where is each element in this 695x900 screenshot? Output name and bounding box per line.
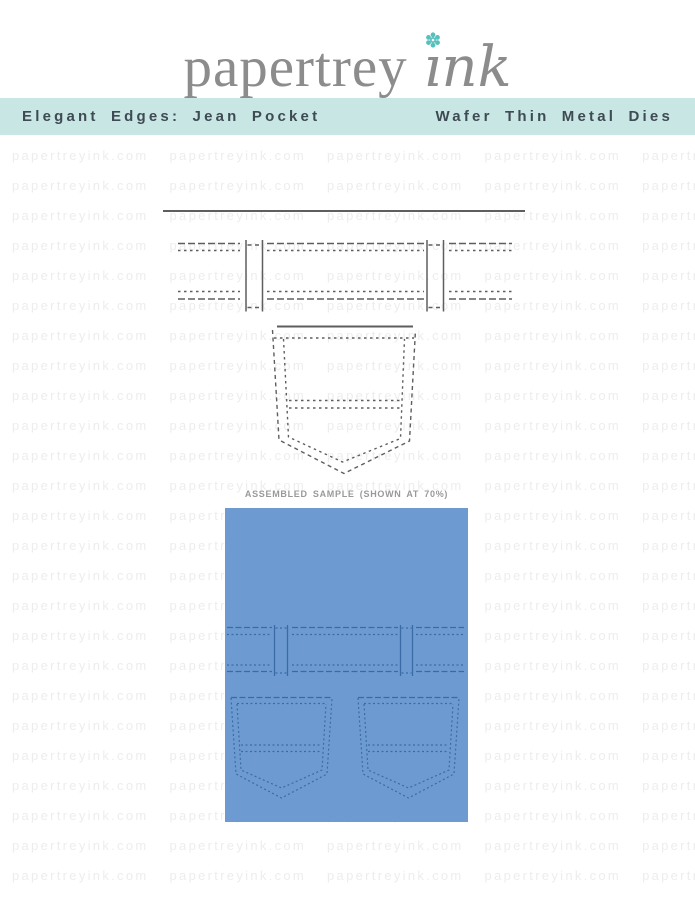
watermark-text: papertreyink.com — [642, 628, 695, 643]
watermark-text: papertreyink.com — [485, 238, 622, 253]
watermark-text: papertreyink.com — [170, 388, 307, 403]
watermark-text: papertreyink.com — [12, 718, 149, 733]
watermark-text: papertreyink.com — [642, 178, 695, 193]
assembled-sample-card — [225, 508, 468, 822]
watermark-text: papertreyink.com — [327, 328, 464, 343]
watermark-text: papertreyink.com — [485, 628, 622, 643]
watermark-text: papertreyink.com — [12, 778, 149, 793]
watermark-text: papertreyink.com — [485, 718, 622, 733]
watermark-text: papertreyink.com — [170, 148, 307, 163]
watermark-text: papertreyink.com — [485, 598, 622, 613]
watermark-row: papertreyink.compapertreyink.compapertre… — [12, 838, 695, 853]
watermark-text: papertreyink.com — [12, 598, 149, 613]
watermark-text: papertreyink.com — [12, 508, 149, 523]
watermark-text: papertreyink.com — [485, 748, 622, 763]
watermark-text: papertreyink.com — [327, 388, 464, 403]
watermark-text: papertreyink.com — [12, 808, 149, 823]
watermark-text: papertreyink.com — [12, 208, 149, 223]
watermark-text: papertreyink.com — [485, 178, 622, 193]
watermark-text: papertreyink.com — [327, 838, 464, 853]
watermark-row: papertreyink.compapertreyink.compapertre… — [12, 418, 695, 433]
watermark-text: papertreyink.com — [12, 328, 149, 343]
watermark-text: papertreyink.com — [327, 148, 464, 163]
watermark-text: papertreyink.com — [485, 328, 622, 343]
watermark-text: papertreyink.com — [642, 748, 695, 763]
watermark-text: papertreyink.com — [485, 268, 622, 283]
watermark-text: papertreyink.com — [485, 298, 622, 313]
watermark-text: papertreyink.com — [485, 478, 622, 493]
watermark-text: papertreyink.com — [12, 388, 149, 403]
sample-belt-loop-right — [401, 625, 413, 676]
sample-stitching — [225, 508, 468, 822]
watermark-text: papertreyink.com — [12, 298, 149, 313]
watermark-text: papertreyink.com — [485, 388, 622, 403]
watermark-row: papertreyink.compapertreyink.compapertre… — [12, 298, 695, 313]
watermark-text: papertreyink.com — [327, 868, 464, 883]
watermark-text: papertreyink.com — [12, 238, 149, 253]
watermark-text: papertreyink.com — [642, 568, 695, 583]
watermark-text: papertreyink.com — [12, 538, 149, 553]
watermark-text: papertreyink.com — [170, 268, 307, 283]
watermark-text: papertreyink.com — [485, 808, 622, 823]
watermark-text: papertreyink.com — [642, 598, 695, 613]
watermark-text: papertreyink.com — [327, 448, 464, 463]
watermark-text: papertreyink.com — [327, 298, 464, 313]
watermark-text: papertreyink.com — [642, 808, 695, 823]
watermark-text: papertreyink.com — [12, 628, 149, 643]
watermark-text: papertreyink.com — [642, 208, 695, 223]
watermark-text: papertreyink.com — [170, 178, 307, 193]
watermark-text: papertreyink.com — [12, 688, 149, 703]
watermark-text: papertreyink.com — [485, 538, 622, 553]
watermark-text: papertreyink.com — [327, 418, 464, 433]
watermark-text: papertreyink.com — [642, 688, 695, 703]
watermark-text: papertreyink.com — [642, 418, 695, 433]
watermark-text: papertreyink.com — [170, 298, 307, 313]
watermark-row: papertreyink.compapertreyink.compapertre… — [12, 268, 695, 283]
product-title: Elegant Edges: Jean Pocket — [22, 108, 320, 125]
watermark-row: papertreyink.compapertreyink.compapertre… — [12, 388, 695, 403]
watermark-text: papertreyink.com — [170, 208, 307, 223]
watermark-text: papertreyink.com — [327, 178, 464, 193]
watermark-row: papertreyink.compapertreyink.compapertre… — [12, 238, 695, 253]
watermark-text: papertreyink.com — [170, 868, 307, 883]
watermark-text: papertreyink.com — [170, 328, 307, 343]
watermark-text: papertreyink.com — [170, 838, 307, 853]
watermark-text: papertreyink.com — [170, 238, 307, 253]
watermark-text: papertreyink.com — [12, 418, 149, 433]
logo-brand-text: papertrey — [183, 39, 407, 96]
watermark-row: papertreyink.compapertreyink.compapertre… — [12, 358, 695, 373]
watermark-text: papertreyink.com — [327, 208, 464, 223]
watermark-text: papertreyink.com — [485, 208, 622, 223]
watermark-text: papertreyink.com — [12, 658, 149, 673]
watermark-text: papertreyink.com — [485, 418, 622, 433]
logo-suffix-wrap: ınk — [424, 40, 512, 96]
watermark-text: papertreyink.com — [12, 358, 149, 373]
watermark-row: papertreyink.compapertreyink.compapertre… — [12, 178, 695, 193]
watermark-text: papertreyink.com — [642, 388, 695, 403]
watermark-text: papertreyink.com — [170, 358, 307, 373]
watermark-row: papertreyink.compapertreyink.compapertre… — [12, 208, 695, 223]
watermark-text: papertreyink.com — [642, 238, 695, 253]
sample-belt-loop-left — [275, 625, 288, 676]
watermark-text: papertreyink.com — [485, 658, 622, 673]
sample-pocket-right — [358, 698, 459, 799]
watermark-row: papertreyink.compapertreyink.compapertre… — [12, 148, 695, 163]
watermark-text: papertreyink.com — [485, 778, 622, 793]
watermark-text: papertreyink.com — [642, 838, 695, 853]
watermark-text: papertreyink.com — [12, 178, 149, 193]
watermark-text: papertreyink.com — [485, 358, 622, 373]
watermark-text: papertreyink.com — [327, 238, 464, 253]
watermark-text: papertreyink.com — [642, 478, 695, 493]
page: papertrey ınk Elegant Edges: Jean Pocket… — [0, 0, 695, 900]
watermark-text: papertreyink.com — [485, 448, 622, 463]
watermark-text: papertreyink.com — [12, 448, 149, 463]
watermark-text: papertreyink.com — [642, 718, 695, 733]
watermark-text: papertreyink.com — [170, 448, 307, 463]
watermark-text: papertreyink.com — [642, 868, 695, 883]
watermark-text: papertreyink.com — [485, 838, 622, 853]
watermark-text: papertreyink.com — [642, 328, 695, 343]
watermark-text: papertreyink.com — [12, 568, 149, 583]
watermark-text: papertreyink.com — [485, 568, 622, 583]
watermark-text: papertreyink.com — [642, 538, 695, 553]
watermark-row: papertreyink.compapertreyink.compapertre… — [12, 448, 695, 463]
watermark-text: papertreyink.com — [485, 868, 622, 883]
watermark-text: papertreyink.com — [12, 748, 149, 763]
watermark-text: papertreyink.com — [642, 658, 695, 673]
watermark-text: papertreyink.com — [485, 148, 622, 163]
watermark-text: papertreyink.com — [12, 148, 149, 163]
watermark-text: papertreyink.com — [642, 778, 695, 793]
sample-waistband — [227, 625, 464, 676]
watermark-text: papertreyink.com — [642, 148, 695, 163]
watermark-text: papertreyink.com — [12, 268, 149, 283]
title-banner: Elegant Edges: Jean Pocket Wafer Thin Me… — [0, 98, 695, 135]
watermark-row: papertreyink.compapertreyink.compapertre… — [12, 328, 695, 343]
watermark-text: papertreyink.com — [485, 688, 622, 703]
sample-pocket-left — [231, 698, 332, 799]
product-type: Wafer Thin Metal Dies — [435, 108, 673, 125]
watermark-text: papertreyink.com — [170, 418, 307, 433]
watermark-text: papertreyink.com — [12, 478, 149, 493]
watermark-text: papertreyink.com — [327, 358, 464, 373]
sample-caption: ASSEMBLED SAMPLE (SHOWN AT 70%) — [225, 489, 468, 499]
flower-icon — [425, 32, 441, 48]
watermark-text: papertreyink.com — [642, 508, 695, 523]
watermark-text: papertreyink.com — [642, 268, 695, 283]
watermark-text: papertreyink.com — [642, 358, 695, 373]
watermark-text: papertreyink.com — [327, 268, 464, 283]
watermark-text: papertreyink.com — [12, 838, 149, 853]
watermark-row: papertreyink.compapertreyink.compapertre… — [12, 868, 695, 883]
watermark-text: papertreyink.com — [12, 868, 149, 883]
watermark-text: papertreyink.com — [642, 298, 695, 313]
brand-logo: papertrey ınk — [0, 10, 695, 96]
watermark-text: papertreyink.com — [642, 448, 695, 463]
watermark-text: papertreyink.com — [485, 508, 622, 523]
